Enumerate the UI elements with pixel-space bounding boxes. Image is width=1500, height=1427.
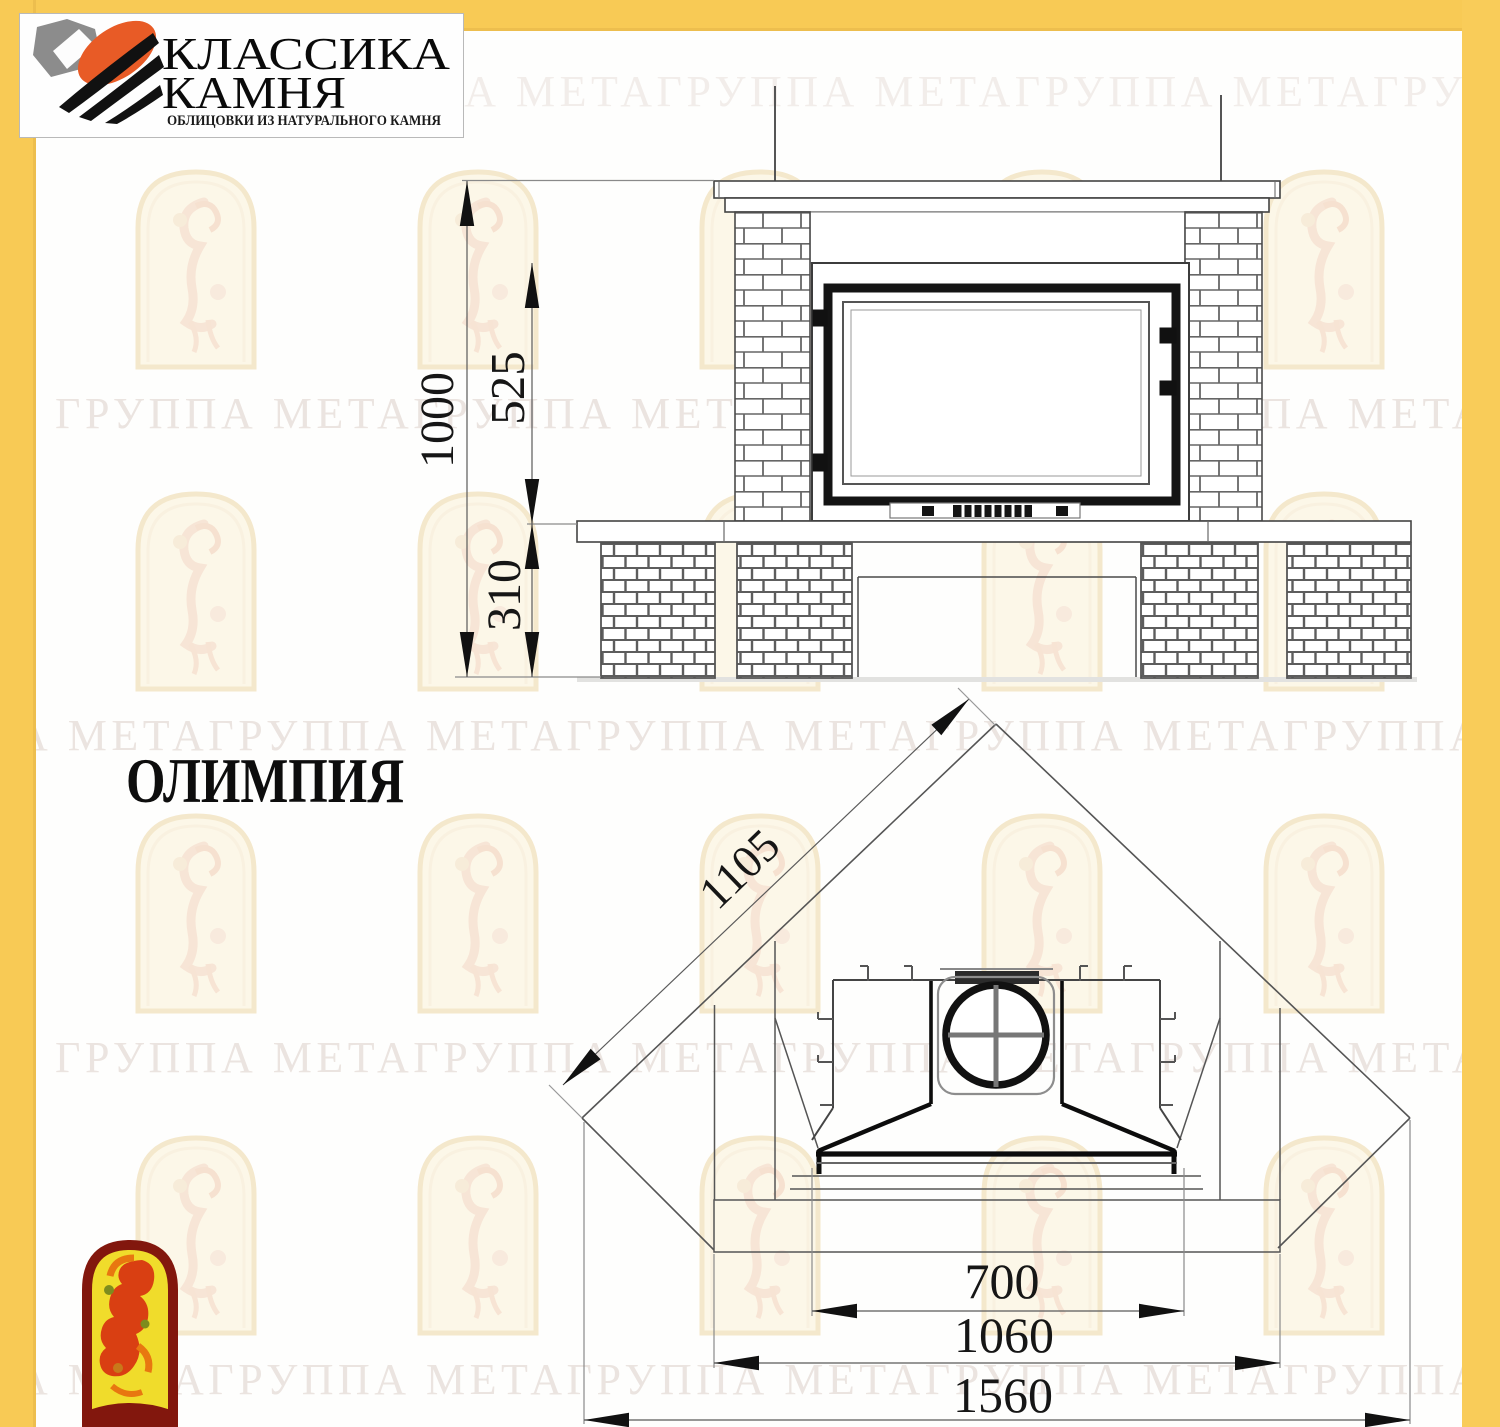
svg-text:1000: 1000 (411, 372, 464, 468)
svg-text:1560: 1560 (953, 1367, 1053, 1423)
svg-text:1105: 1105 (689, 819, 789, 918)
svg-text:КАМНЯ: КАМНЯ (162, 67, 346, 118)
svg-text:1060: 1060 (954, 1307, 1054, 1363)
svg-text:ОЛИМПИЯ: ОЛИМПИЯ (126, 745, 404, 816)
svg-text:525: 525 (480, 351, 535, 425)
svg-text:700: 700 (965, 1253, 1040, 1309)
svg-text:ОБЛИЦОВКИ ИЗ НАТУРАЛЬНОГО КАМН: ОБЛИЦОВКИ ИЗ НАТУРАЛЬНОГО КАМНЯ (167, 113, 441, 129)
svg-text:310: 310 (478, 559, 531, 631)
